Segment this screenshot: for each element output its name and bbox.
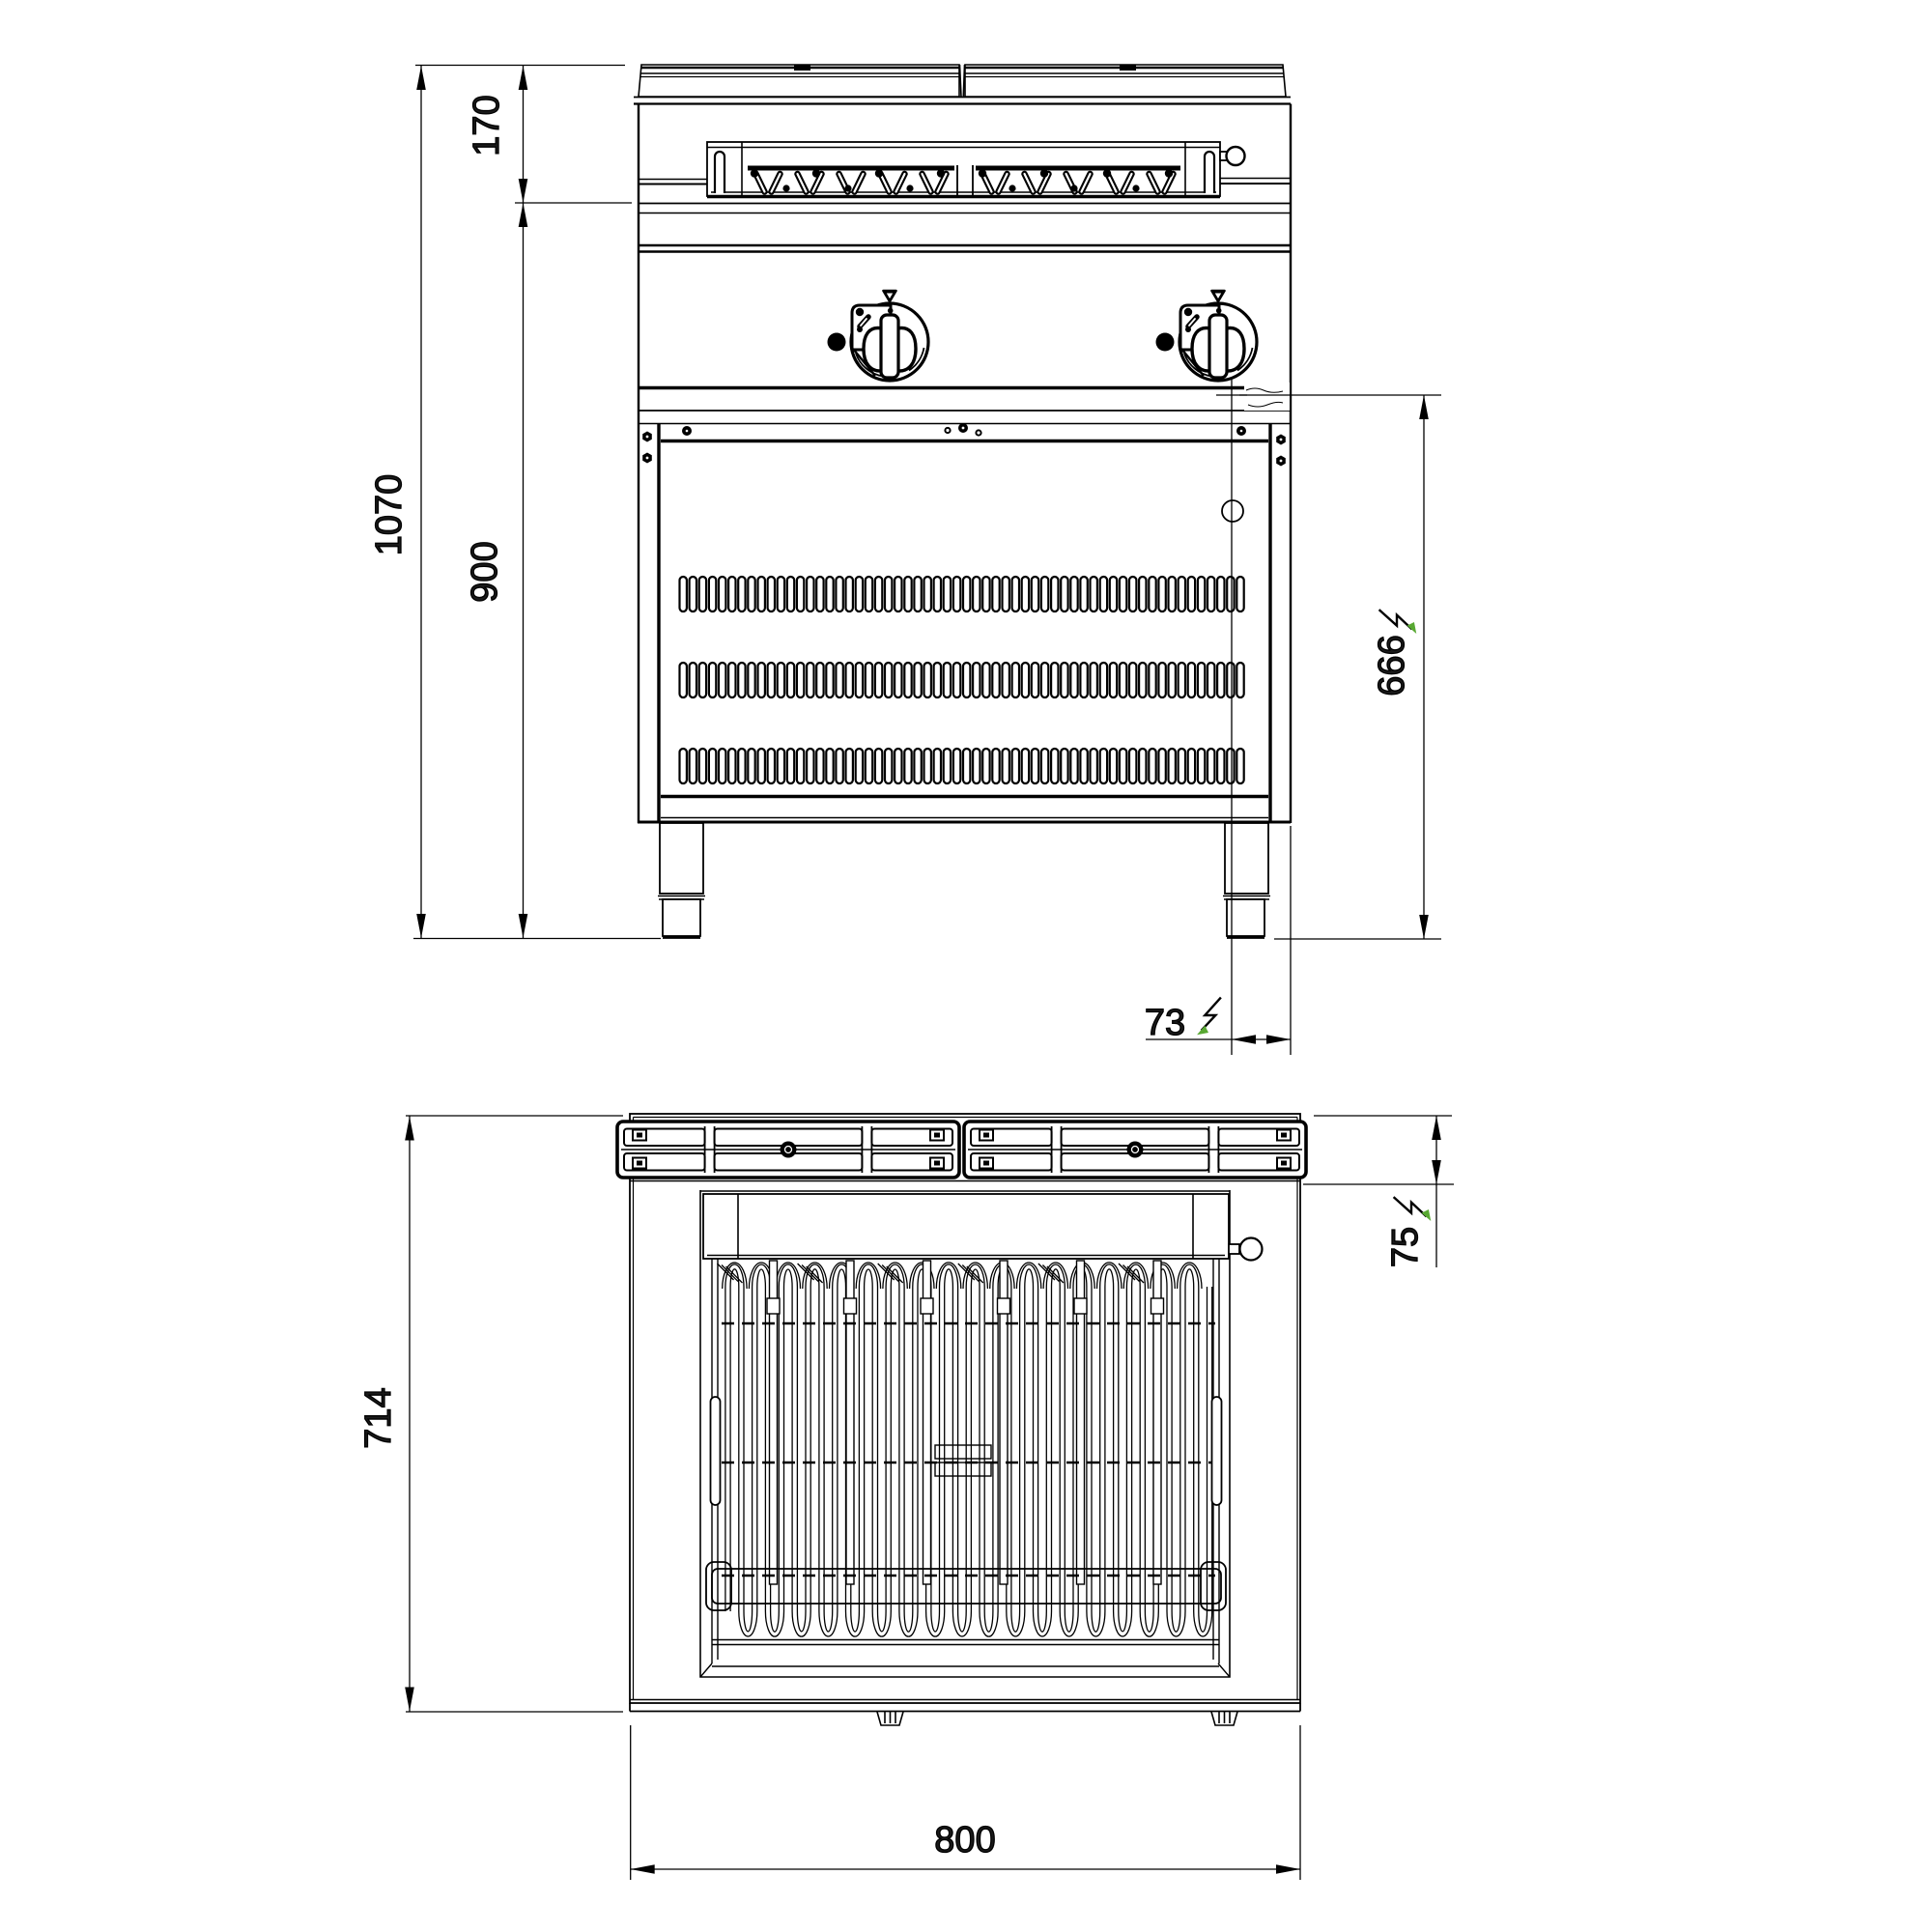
svg-text:1070: 1070 [369,474,410,556]
svg-text:73: 73 [1145,1003,1185,1043]
svg-text:75: 75 [1385,1227,1426,1267]
svg-text:666: 666 [1372,635,1412,696]
svg-text:170: 170 [467,95,507,156]
svg-text:800: 800 [934,1820,995,1861]
svg-text:900: 900 [465,541,505,602]
svg-text:714: 714 [358,1387,399,1448]
